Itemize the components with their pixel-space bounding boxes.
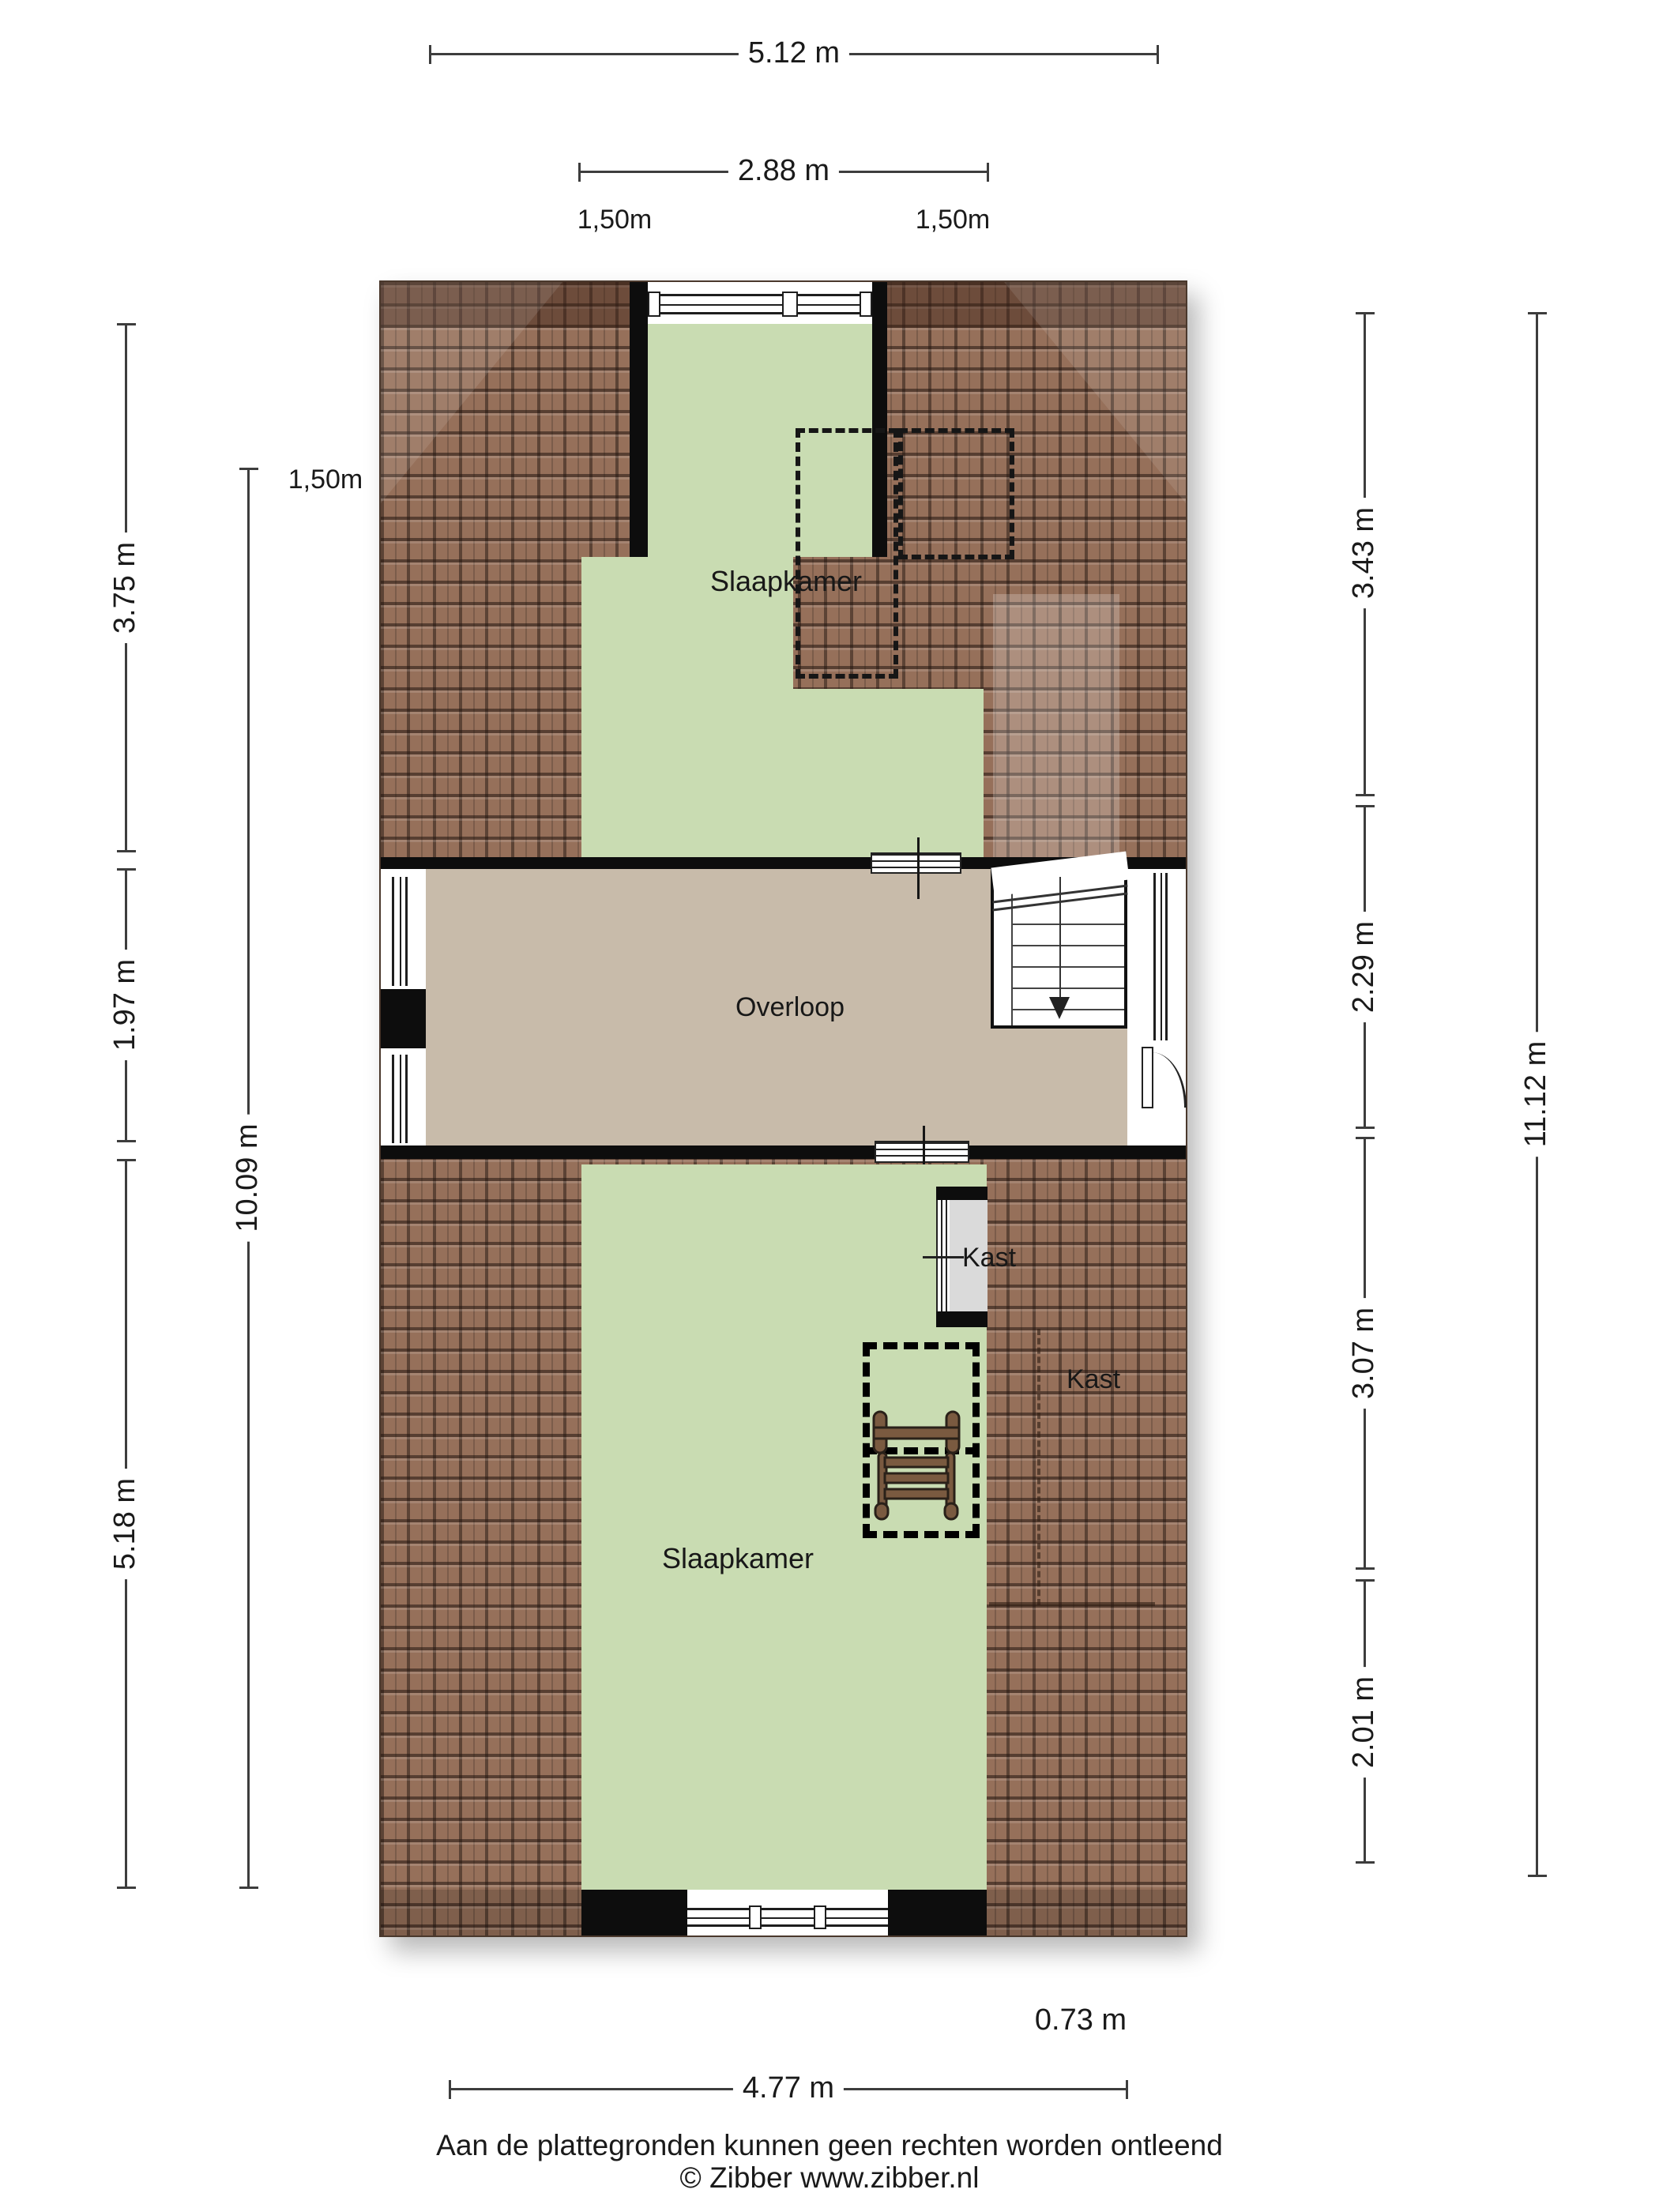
footer-credit: © Zibber www.zibber.nl: [0, 2161, 1659, 2195]
wall-bottom-right: [888, 1890, 987, 1935]
dim-label-left-bottom: 5.18 m: [107, 1469, 143, 1579]
label-bedroom-bottom: Slaapkamer: [662, 1544, 814, 1573]
label-bedroom-top: Slaapkamer: [710, 567, 862, 596]
label-closet-small: Kast: [962, 1244, 1016, 1271]
crib-icon: [872, 1410, 961, 1521]
window-landing-left-lower: [392, 1055, 408, 1143]
closet-nook-wall-bottom: [936, 1311, 987, 1327]
window-top-mullion-center: [782, 292, 798, 317]
dim-label-bottom-width: 4.77 m: [733, 2070, 844, 2106]
window-bottom-mullion-1: [749, 1905, 762, 1929]
dim-label-right-total: 11.12 m: [1518, 1032, 1554, 1157]
room-landing-floor: [426, 869, 991, 1145]
closet-nook-wall-top: [936, 1187, 987, 1200]
window-landing-right: [1153, 873, 1168, 1040]
label-closet-small-leader: [923, 1256, 964, 1258]
dim-label-left-top: 3.75 m: [107, 532, 143, 643]
dim-label-bottom-offset: 0.73 m: [1025, 2002, 1136, 2038]
dim-label-right-3: 3.07 m: [1345, 1298, 1382, 1409]
dim-label-headroom-top-right: 1,50m: [906, 203, 1000, 236]
closet-dashed-outline-1: [796, 428, 898, 679]
stair-center-line: [1059, 877, 1061, 999]
roof-eaves-shade-right: [987, 1890, 1186, 1935]
closet-dashed-outline-2: [898, 428, 1014, 559]
door-symbol-top-tick: [917, 837, 920, 899]
dim-label-right-1: 3.43 m: [1345, 498, 1382, 608]
window-bottom-glazing: [687, 1908, 888, 1927]
dim-label-top-width: 5.12 m: [739, 35, 849, 71]
dim-label-right-4: 2.01 m: [1345, 1667, 1382, 1777]
roof-eaves-shade-left: [381, 1890, 581, 1935]
dim-label-headroom-side: 1,50m: [279, 463, 373, 496]
window-landing-left-upper: [392, 877, 408, 986]
dim-label-left-total: 10.09 m: [229, 1114, 265, 1241]
stair-down-arrow-icon: [1049, 997, 1070, 1019]
window-top-glazing: [648, 294, 872, 314]
label-landing: Overloop: [735, 994, 845, 1021]
door-symbol-top: [871, 852, 961, 874]
building-outline: [379, 280, 1187, 1937]
label-closet-under-roof: Kast: [1066, 1366, 1120, 1393]
window-top-mullion-right: [860, 292, 872, 317]
room-landing-floor-below-stairs: [991, 1029, 1127, 1145]
wall-bottom-left: [581, 1890, 687, 1935]
window-bottom-mullion-2: [814, 1905, 826, 1929]
dim-label-left-middle: 1.97 m: [107, 950, 143, 1060]
wall-top-window-left-post: [630, 282, 648, 557]
dim-label-right-2: 2.29 m: [1345, 912, 1382, 1022]
door-symbol-bottom: [875, 1141, 969, 1163]
footer-disclaimer: Aan de plattegronden kunnen geen rechten…: [0, 2129, 1659, 2162]
wall-landing-bottom: [381, 1145, 1186, 1159]
dim-label-headroom-top-left: 1,50m: [568, 203, 662, 236]
closet-under-roof-dashed-edge: [1037, 1329, 1040, 1605]
roof-light-overlay: [993, 594, 1119, 857]
staircase: [991, 869, 1127, 1029]
wall-left-pier: [381, 989, 426, 1048]
stair-stringer: [1011, 872, 1013, 1025]
window-top-mullion-left: [648, 292, 660, 317]
floorplan-canvas: 5.12 m 2.88 m 1,50m 1,50m 3.75 m 1.97 m …: [0, 0, 1659, 2212]
room-bedroom-top-extension: [793, 689, 984, 857]
closet-under-roof-bottom-line: [989, 1602, 1155, 1606]
dim-label-top-inner-width: 2.88 m: [728, 152, 839, 189]
room-bedroom-top-wide: [581, 557, 793, 857]
